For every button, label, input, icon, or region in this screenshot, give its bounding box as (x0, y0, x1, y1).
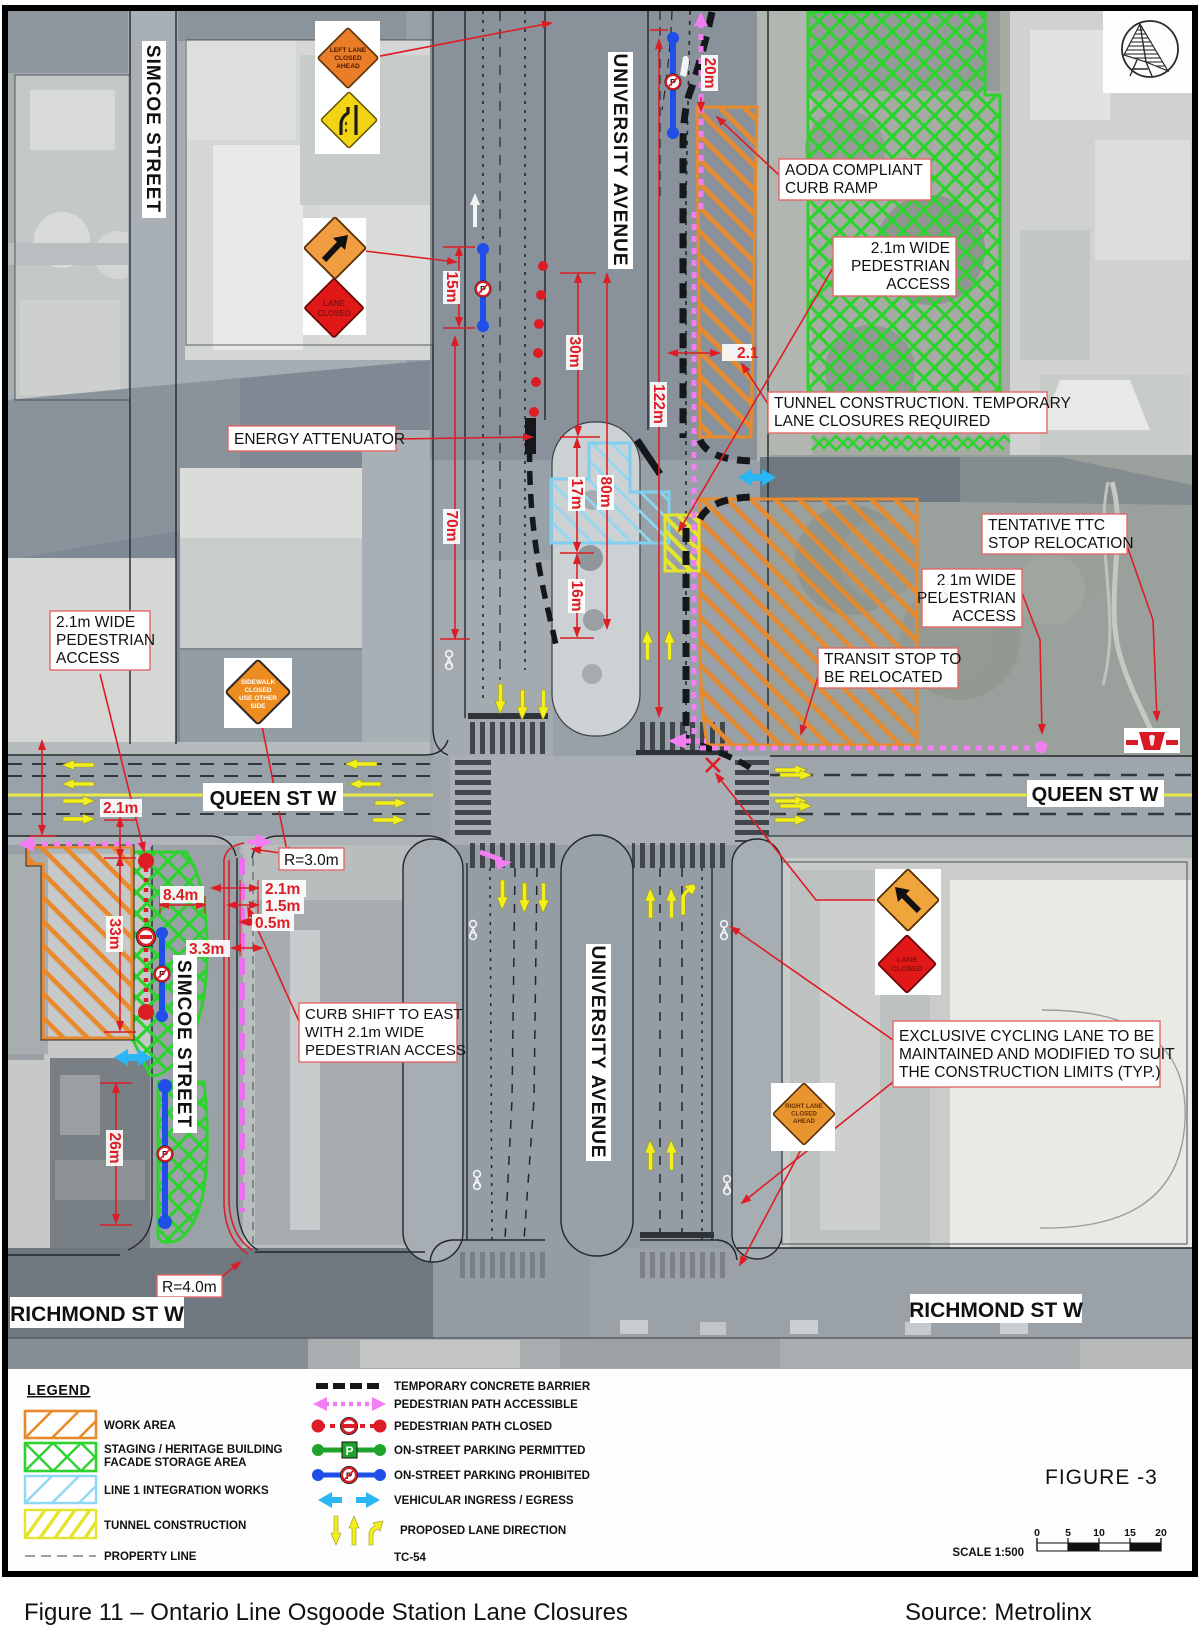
svg-text:MAINTAINED AND MODIFIED TO SUI: MAINTAINED AND MODIFIED TO SUIT (899, 1046, 1175, 1063)
svg-text:2.1: 2.1 (737, 345, 759, 362)
svg-text:AHEAD: AHEAD (336, 63, 360, 70)
svg-text:LEFT LANE: LEFT LANE (330, 47, 367, 54)
svg-text:PEDESTRIAN ACCESS: PEDESTRIAN ACCESS (305, 1042, 466, 1059)
svg-text:20m: 20m (701, 57, 718, 88)
svg-text:TENTATIVE TTC: TENTATIVE TTC (988, 517, 1105, 534)
svg-text:CLOSED: CLOSED (791, 1111, 817, 1118)
svg-text:2.1m: 2.1m (103, 800, 138, 817)
svg-text:R=3.0m: R=3.0m (284, 852, 339, 869)
svg-text:P: P (345, 1444, 353, 1458)
svg-text:TRANSIT STOP TO: TRANSIT STOP TO (824, 651, 961, 668)
svg-text:TEMPORARY CONCRETE BARRIER: TEMPORARY CONCRETE BARRIER (394, 1381, 591, 1393)
svg-text:RIGHT LANE: RIGHT LANE (785, 1103, 823, 1110)
svg-text:CLOSED: CLOSED (317, 309, 351, 318)
svg-text:ACCESS: ACCESS (952, 608, 1016, 625)
svg-text:2.1m WIDE: 2.1m WIDE (56, 614, 135, 631)
svg-text:QUEEN ST W: QUEEN ST W (1032, 784, 1159, 806)
svg-text:LANE: LANE (323, 299, 345, 308)
svg-text:2.1m WIDE: 2.1m WIDE (871, 240, 950, 257)
svg-text:PEDESTRIAN PATH CLOSED: PEDESTRIAN PATH CLOSED (394, 1421, 552, 1433)
svg-text:STOP RELOCATION: STOP RELOCATION (988, 535, 1134, 552)
svg-text:PEDESTRIAN: PEDESTRIAN (917, 590, 1016, 607)
svg-text:ACCESS: ACCESS (56, 650, 120, 667)
svg-text:70m: 70m (443, 510, 460, 541)
svg-text:0: 0 (1034, 1527, 1040, 1539)
svg-text:ENERGY ATTENUATOR: ENERGY ATTENUATOR (234, 431, 405, 448)
svg-text:15m: 15m (443, 271, 460, 302)
svg-text:17m: 17m (568, 478, 585, 509)
svg-text:FIGURE -3: FIGURE -3 (1045, 1466, 1158, 1489)
svg-text:8.4m: 8.4m (163, 887, 198, 904)
svg-text:LINE 1 INTEGRATION WORKS: LINE 1 INTEGRATION WORKS (104, 1485, 269, 1497)
svg-text:THE CONSTRUCTION LIMITS (TYP.): THE CONSTRUCTION LIMITS (TYP.) (899, 1064, 1161, 1081)
svg-text:0.5m: 0.5m (255, 915, 290, 932)
svg-text:AHEAD: AHEAD (793, 1118, 816, 1125)
svg-text:15: 15 (1124, 1527, 1136, 1539)
svg-text:VEHICULAR INGRESS / EGRESS: VEHICULAR INGRESS / EGRESS (394, 1495, 574, 1507)
svg-text:10: 10 (1093, 1527, 1105, 1539)
svg-text:20: 20 (1155, 1527, 1167, 1539)
svg-text:WORK AREA: WORK AREA (104, 1420, 176, 1432)
svg-text:PROPERTY LINE: PROPERTY LINE (104, 1551, 197, 1563)
svg-text:FACADE STORAGE AREA: FACADE STORAGE AREA (104, 1457, 247, 1469)
svg-text:UNIVERSITY AVENUE: UNIVERSITY AVENUE (609, 53, 630, 266)
svg-text:PEDESTRIAN PATH ACCESSIBLE: PEDESTRIAN PATH ACCESSIBLE (394, 1399, 578, 1411)
svg-text:Figure 11 – Ontario Line Osgoo: Figure 11 – Ontario Line Osgoode Station… (24, 1599, 628, 1626)
svg-text:RICHMOND ST W: RICHMOND ST W (909, 1299, 1083, 1322)
svg-text:CURB SHIFT TO EAST: CURB SHIFT TO EAST (305, 1006, 463, 1023)
svg-text:2.1m: 2.1m (265, 881, 300, 898)
svg-text:LANE: LANE (897, 955, 917, 964)
svg-text:SIDEWALK: SIDEWALK (241, 679, 276, 686)
svg-text:Source: Metrolinx: Source: Metrolinx (905, 1599, 1092, 1626)
svg-text:EXCLUSIVE CYCLING LANE TO BE: EXCLUSIVE CYCLING LANE TO BE (899, 1028, 1154, 1045)
svg-text:STAGING / HERITAGE BUILDING: STAGING / HERITAGE BUILDING (104, 1444, 283, 1456)
svg-text:SIDE: SIDE (250, 703, 266, 710)
svg-text:CLOSED: CLOSED (334, 55, 362, 62)
svg-text:PEDESTRIAN: PEDESTRIAN (851, 258, 950, 275)
svg-text:1.5m: 1.5m (265, 898, 300, 915)
svg-text:80m: 80m (597, 476, 614, 507)
svg-text:QUEEN ST W: QUEEN ST W (210, 788, 337, 810)
svg-text:16m: 16m (568, 580, 585, 611)
svg-text:SCALE 1:500: SCALE 1:500 (952, 1547, 1024, 1559)
svg-text:ON-STREET PARKING PROHIBITED: ON-STREET PARKING PROHIBITED (394, 1470, 590, 1482)
svg-text:TC-54: TC-54 (394, 1552, 427, 1564)
svg-text:BE RELOCATED: BE RELOCATED (824, 669, 943, 686)
svg-text:26m: 26m (106, 1132, 123, 1163)
svg-text:LANE CLOSURES REQUIRED: LANE CLOSURES REQUIRED (774, 413, 990, 430)
svg-text:CLOSED: CLOSED (244, 687, 271, 694)
svg-text:UNIVERSITY AVENUE: UNIVERSITY AVENUE (587, 945, 608, 1158)
svg-text:ON-STREET PARKING PERMITTED: ON-STREET PARKING PERMITTED (394, 1445, 585, 1457)
svg-text:30m: 30m (566, 336, 583, 367)
svg-text:CURB RAMP: CURB RAMP (785, 180, 878, 197)
svg-text:ACCESS: ACCESS (886, 276, 950, 293)
svg-text:PROPOSED LANE DIRECTION: PROPOSED LANE DIRECTION (400, 1525, 566, 1537)
svg-text:SIMCOE STREET: SIMCOE STREET (173, 960, 194, 1128)
svg-text:SIMCOE STREET: SIMCOE STREET (142, 45, 163, 213)
svg-text:33m: 33m (106, 918, 123, 949)
svg-text:PEDESTRIAN: PEDESTRIAN (56, 632, 155, 649)
svg-text:2.1m WIDE: 2.1m WIDE (937, 572, 1016, 589)
svg-text:5: 5 (1065, 1527, 1071, 1539)
svg-text:R=4.0m: R=4.0m (162, 1279, 217, 1296)
svg-text:USE OTHER: USE OTHER (239, 695, 277, 702)
svg-text:RICHMOND ST W: RICHMOND ST W (10, 1303, 184, 1326)
svg-text:CLOSED: CLOSED (891, 964, 923, 973)
svg-text:LEGEND: LEGEND (27, 1383, 90, 1399)
svg-text:TUNNEL CONSTRUCTION. TEMPORARY: TUNNEL CONSTRUCTION. TEMPORARY (774, 395, 1071, 412)
svg-text:TUNNEL CONSTRUCTION: TUNNEL CONSTRUCTION (104, 1520, 246, 1532)
svg-text:WITH 2.1m WIDE: WITH 2.1m WIDE (305, 1024, 424, 1041)
svg-text:AODA COMPLIANT: AODA COMPLIANT (785, 162, 923, 179)
svg-text:122m: 122m (650, 384, 667, 424)
